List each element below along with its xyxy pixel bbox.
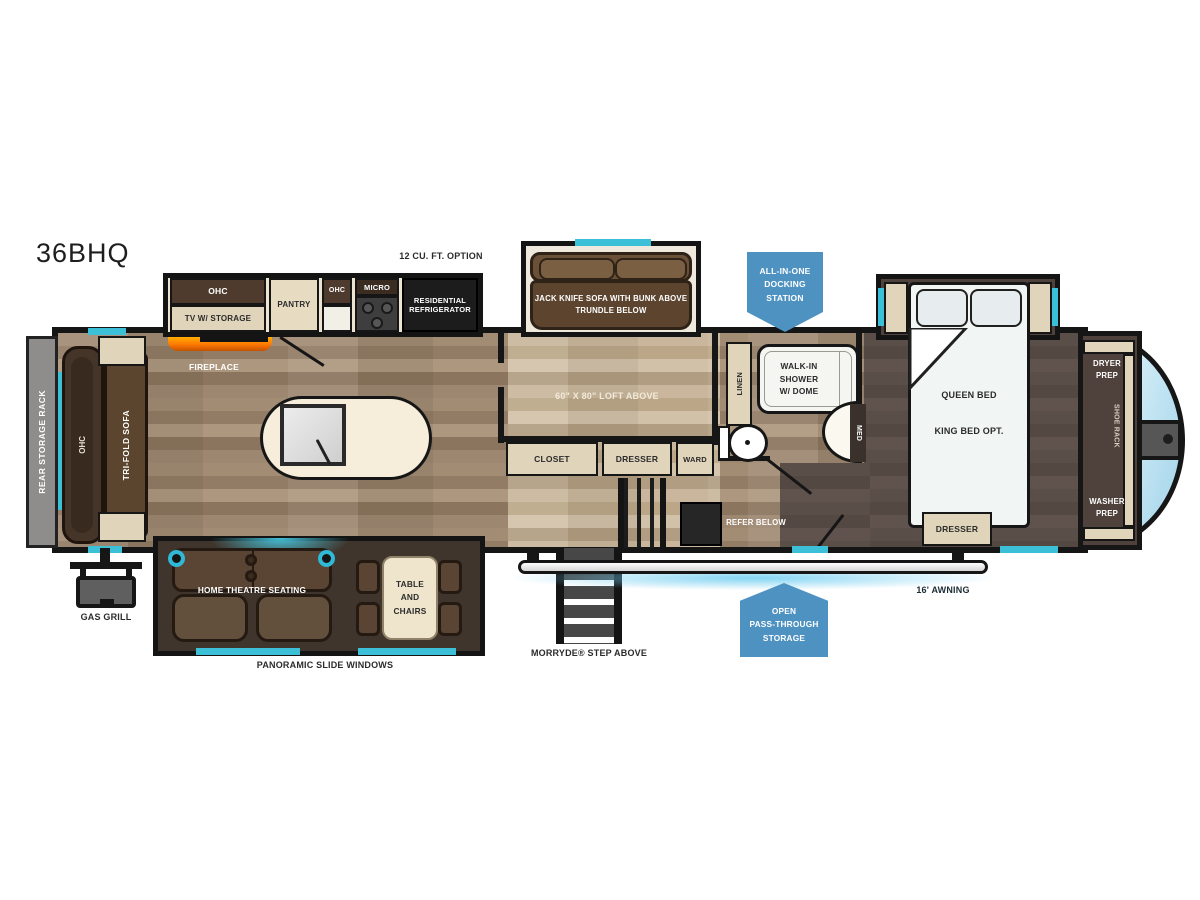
cup-holder-left (168, 550, 185, 567)
dryer-prep-label: DRYER PREP (1085, 358, 1129, 381)
awning-label: 16' AWNING (898, 585, 988, 596)
gas-grill (76, 576, 136, 608)
floorplan-canvas: 36BHQ REAR STORAGE RACK OHC TRI-FOLD SOF… (0, 0, 1200, 900)
king-option-label: KING BED OPT. (908, 426, 1030, 437)
bedroom-dresser: DRESSER (922, 512, 992, 546)
rear-corner-cabinet-top (98, 336, 146, 366)
bunk-dresser: DRESSER (602, 442, 672, 476)
awning-bar (518, 560, 988, 574)
refer-below-label: REFER BELOW (720, 518, 792, 527)
window-bedroom-bottom (1000, 546, 1058, 553)
jack-knife-sofa-label: JACK KNIFE SOFA WITH BUNK ABOVE TRUNDLE … (535, 293, 687, 316)
micro-label: MICRO (364, 283, 390, 292)
theatre-seat-cushion-left (172, 594, 248, 642)
hitch-pin (1163, 434, 1173, 444)
dinette-table: TABLE AND CHAIRS (382, 556, 438, 640)
toilet-bowl (728, 424, 768, 462)
residential-refrigerator: RESIDENTIAL REFRIGERATOR (402, 278, 478, 332)
queen-bed-label: QUEEN BED (908, 390, 1030, 401)
med-label: MED (854, 425, 862, 441)
tv-storage-cabinet: TV W/ STORAGE (170, 305, 266, 332)
range-stove (355, 296, 399, 332)
console-cup-1 (245, 554, 257, 566)
kitchen-ohc2-label: OHC (329, 287, 345, 295)
dinette-chair-2 (356, 602, 380, 636)
bunk-dresser-label: DRESSER (616, 454, 659, 464)
bed-slide-window-right (1052, 288, 1058, 326)
island-sink (280, 404, 346, 466)
loft-stairs (618, 478, 666, 548)
sofa-ohc-label: OHC (78, 436, 87, 454)
nightstand-left (884, 282, 908, 334)
closet-label: CLOSET (534, 454, 570, 464)
burner-2 (381, 302, 393, 314)
bedroom-dresser-label: DRESSER (936, 524, 979, 534)
gas-grill-label: GAS GRILL (58, 612, 154, 623)
theatre-seat-cushion-right (256, 594, 332, 642)
hitch-pin-box (1138, 420, 1182, 460)
docking-station-badge: ALL-IN-ONE DOCKING STATION (747, 252, 823, 332)
panoramic-windows-label: PANORAMIC SLIDE WINDOWS (225, 660, 425, 671)
closet: CLOSET (506, 442, 598, 476)
fireplace-label: FIREPLACE (164, 362, 264, 372)
window-hall-bottom (792, 546, 828, 553)
nightstand-right (1028, 282, 1052, 334)
grill-leg-left (80, 569, 86, 576)
linen-label: LINEN (735, 372, 744, 396)
docking-station-label: ALL-IN-ONE DOCKING STATION (759, 265, 810, 306)
grill-mount-bar (70, 562, 142, 569)
kitchen-ohc2-cabinet: OHC (322, 278, 352, 305)
wardrobe: WARD (676, 442, 714, 476)
tri-fold-sofa-seat: TRI-FOLD SOFA (104, 352, 148, 538)
linen-cabinet: LINEN (726, 342, 752, 426)
front-compartment: DRYER PREP WASHER PREP SHOE RACK (1078, 331, 1142, 550)
dinette-chair-1 (356, 560, 380, 594)
dinette-chair-3 (438, 560, 462, 594)
model-number: 36BHQ (36, 238, 130, 269)
kitchen-ohc-cabinet: OHC (170, 278, 266, 305)
refrigerator-label: RESIDENTIAL REFRIGERATOR (409, 296, 471, 314)
dinette-chair-4 (438, 602, 462, 636)
wall-bunk-left-upper (498, 333, 504, 363)
pass-through-label: OPEN PASS-THROUGH STORAGE (749, 605, 818, 645)
pantry-label: PANTRY (277, 300, 310, 310)
dinette-table-label: TABLE AND CHAIRS (393, 578, 426, 618)
med-cabinet: MED (850, 404, 866, 462)
window-top-rear (88, 328, 126, 335)
blanket-fold (908, 328, 968, 390)
console-cup-2 (245, 570, 257, 582)
pass-through-badge: OPEN PASS-THROUGH STORAGE (740, 583, 828, 657)
cup-holder-right (318, 550, 335, 567)
refer-below-unit (680, 502, 722, 546)
micro-label-box: MICRO (355, 278, 399, 296)
step-label: MORRYDE® STEP ABOVE (518, 648, 660, 659)
living-slide-window-left (196, 648, 300, 655)
wall-bunk-left-lower (498, 387, 504, 443)
home-theatre-label: HOME THEATRE SEATING (172, 586, 332, 596)
bunk-slide-window (575, 239, 651, 246)
living-slide-window-right (358, 648, 456, 655)
kitchen-counter (322, 305, 352, 332)
burner-1 (362, 302, 374, 314)
jack-knife-sofa-back (530, 252, 692, 282)
rear-corner-cabinet-bottom (98, 512, 146, 542)
grill-leg-right (126, 569, 132, 576)
kitchen-ohc-label: OHC (208, 286, 228, 296)
rear-storage-rack: REAR STORAGE RACK (26, 336, 58, 548)
wardrobe-label: WARD (683, 455, 707, 464)
loft-label: 60" X 80" LOFT ABOVE (527, 391, 687, 402)
tri-fold-sofa-label: TRI-FOLD SOFA (121, 410, 131, 480)
refrigerator-option-label: 12 CU. FT. OPTION (381, 251, 501, 262)
burner-3 (371, 317, 383, 329)
bed-slide-window-left (878, 288, 884, 326)
washer-prep-label: WASHER PREP (1085, 496, 1129, 519)
jack-knife-sofa-seat: JACK KNIFE SOFA WITH BUNK ABOVE TRUNDLE … (530, 280, 692, 330)
shoe-rack-label: SHOE RACK (1111, 404, 1119, 448)
pantry-cabinet: PANTRY (269, 278, 319, 332)
rear-storage-rack-label: REAR STORAGE RACK (37, 390, 47, 494)
pillow-left (916, 289, 968, 327)
tv-storage-label: TV W/ STORAGE (185, 314, 251, 324)
pillow-right (970, 289, 1022, 327)
